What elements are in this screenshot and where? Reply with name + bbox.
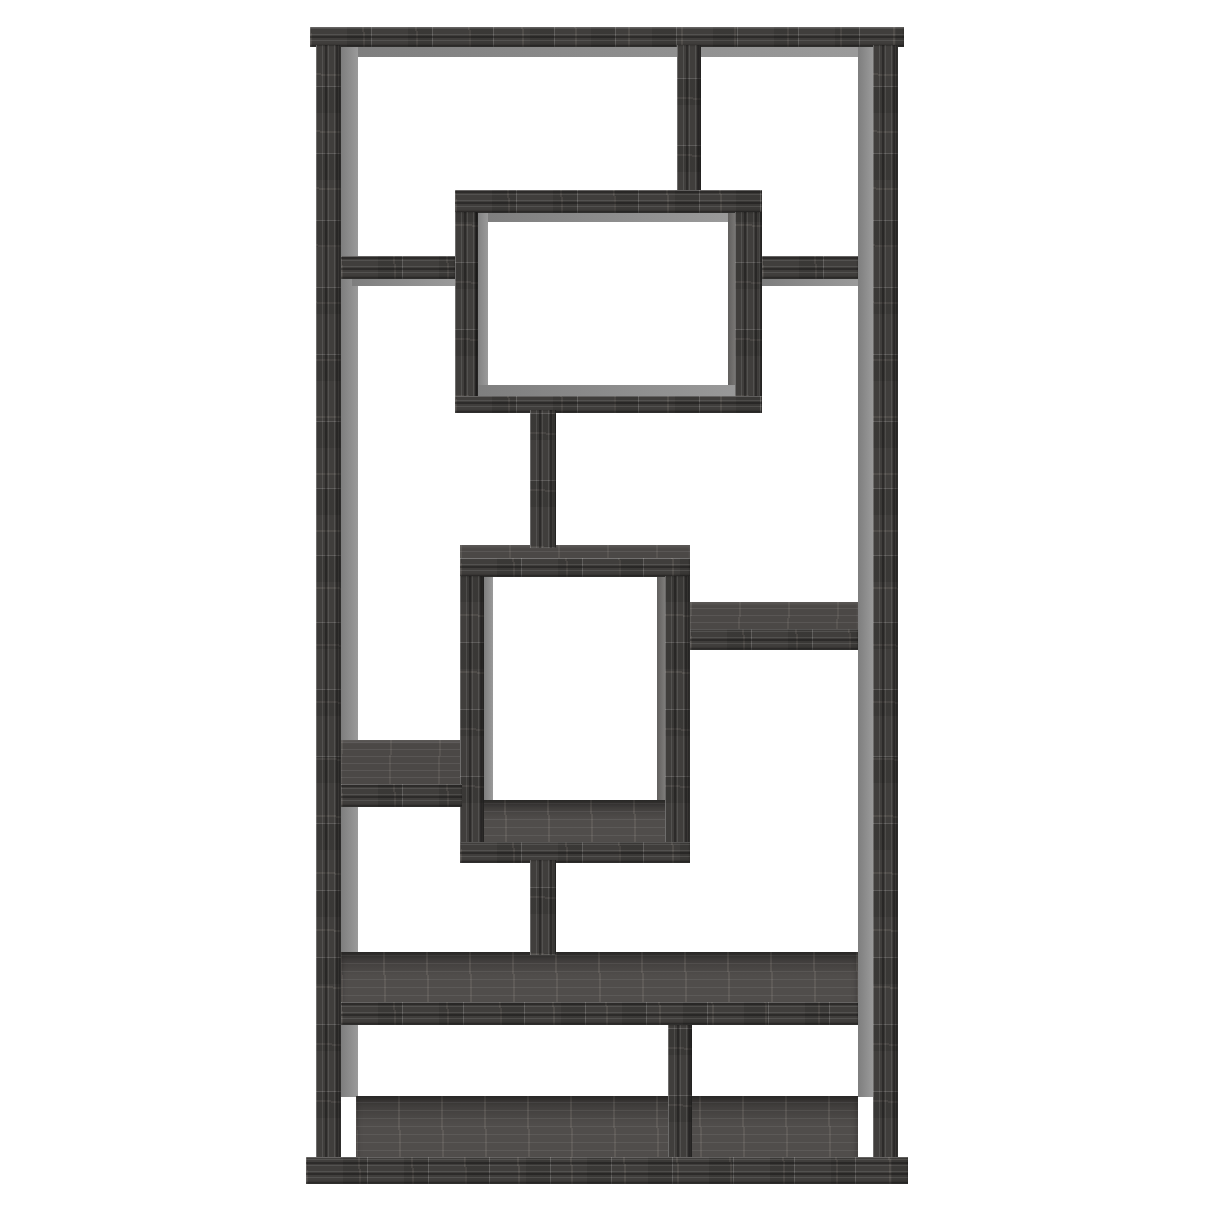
bookshelf-parts-layer <box>0 0 1214 1214</box>
left-post-inner-face <box>341 47 358 1097</box>
middle-box-left-side <box>460 576 484 844</box>
base-top-face <box>356 1096 858 1159</box>
upper-box-right-side <box>735 212 762 397</box>
base-front <box>306 1157 908 1184</box>
top-divider <box>677 45 701 213</box>
right-post-inner-face <box>858 47 873 1097</box>
middle-box-floor <box>462 800 688 844</box>
long-shelf-top-face <box>341 952 858 1004</box>
right-post <box>873 45 898 1159</box>
bookshelf-product-photo <box>0 0 1214 1214</box>
upper-stem <box>530 410 556 548</box>
left-top-shelf-underside <box>352 278 455 286</box>
left-mid-shelf-front <box>341 784 462 807</box>
right-top-shelf <box>762 256 858 279</box>
left-post <box>316 45 341 1159</box>
upper-box-top-underside <box>478 212 730 222</box>
upper-box-bottom-board <box>455 396 762 413</box>
top-board <box>310 27 904 47</box>
middle-box-right-inner-face <box>657 577 665 805</box>
middle-box-right-side <box>665 576 690 844</box>
lower-stem <box>530 860 556 955</box>
long-shelf-front <box>341 1002 858 1025</box>
middle-box-top-front <box>460 558 690 577</box>
upper-box-top-board <box>455 190 762 213</box>
left-mid-shelf-top-face <box>341 740 462 785</box>
middle-box-top-face <box>460 545 690 559</box>
upper-box-left-side <box>455 212 478 397</box>
middle-box-left-inner-face <box>484 577 493 805</box>
middle-box-bottom-front <box>460 842 690 863</box>
bottom-divider <box>668 1025 692 1163</box>
right-top-shelf-underside <box>762 278 858 286</box>
left-top-shelf <box>341 256 455 279</box>
right-mid-shelf-top-face <box>690 602 858 630</box>
right-mid-shelf-front <box>690 629 858 650</box>
